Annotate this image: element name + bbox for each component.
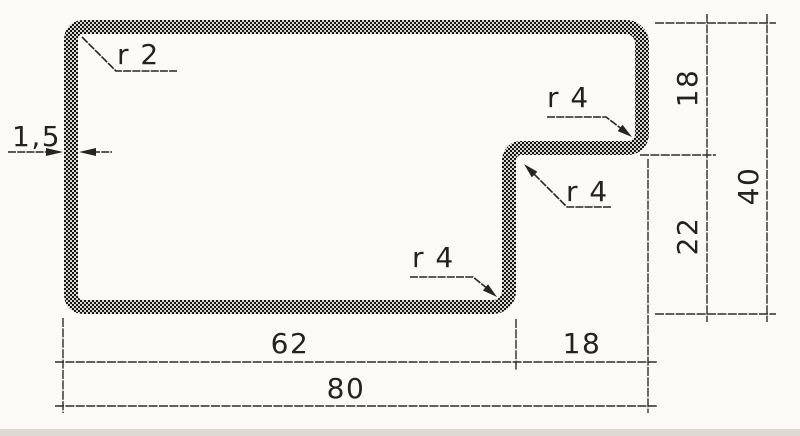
r4-hook-leader: [547, 117, 623, 130]
dim-height-total: 40: [732, 167, 765, 206]
r4-step-bottom-label: r 4: [412, 241, 455, 274]
radius-callout-step-top: r 4: [524, 164, 611, 208]
dim-height-bottom: 22: [671, 217, 704, 256]
r4-hook-label: r 4: [547, 81, 590, 114]
profile-drawing-canvas: 18 22 40 62 18 80 1,5 r 2 r 4 r 4: [0, 0, 800, 436]
scan-edge-artifact: [0, 429, 800, 436]
r2-label: r 2: [117, 38, 160, 71]
arrowhead-left-icon: [79, 148, 96, 156]
scanned-technical-drawing: 18 22 40 62 18 80 1,5 r 2 r 4 r 4: [0, 0, 800, 436]
radius-callout-hook: r 4: [547, 81, 632, 137]
thickness-label: 1,5: [12, 120, 61, 153]
r4-step-bottom-leader: [410, 277, 488, 289]
dim-width-total: 80: [327, 372, 366, 405]
right-dimension-group: 18 22 40: [640, 14, 776, 322]
thickness-callout-group: 1,5: [8, 120, 112, 156]
r4-step-top-label: r 4: [566, 175, 609, 208]
dim-width-left: 62: [271, 327, 310, 360]
radius-callout-step-bottom: r 4: [410, 241, 497, 297]
dim-width-right: 18: [563, 327, 602, 360]
dim-height-top: 18: [671, 69, 704, 108]
radius-callout-top-left: r 2: [82, 37, 177, 71]
arrowhead-down-right-icon: [618, 125, 632, 137]
